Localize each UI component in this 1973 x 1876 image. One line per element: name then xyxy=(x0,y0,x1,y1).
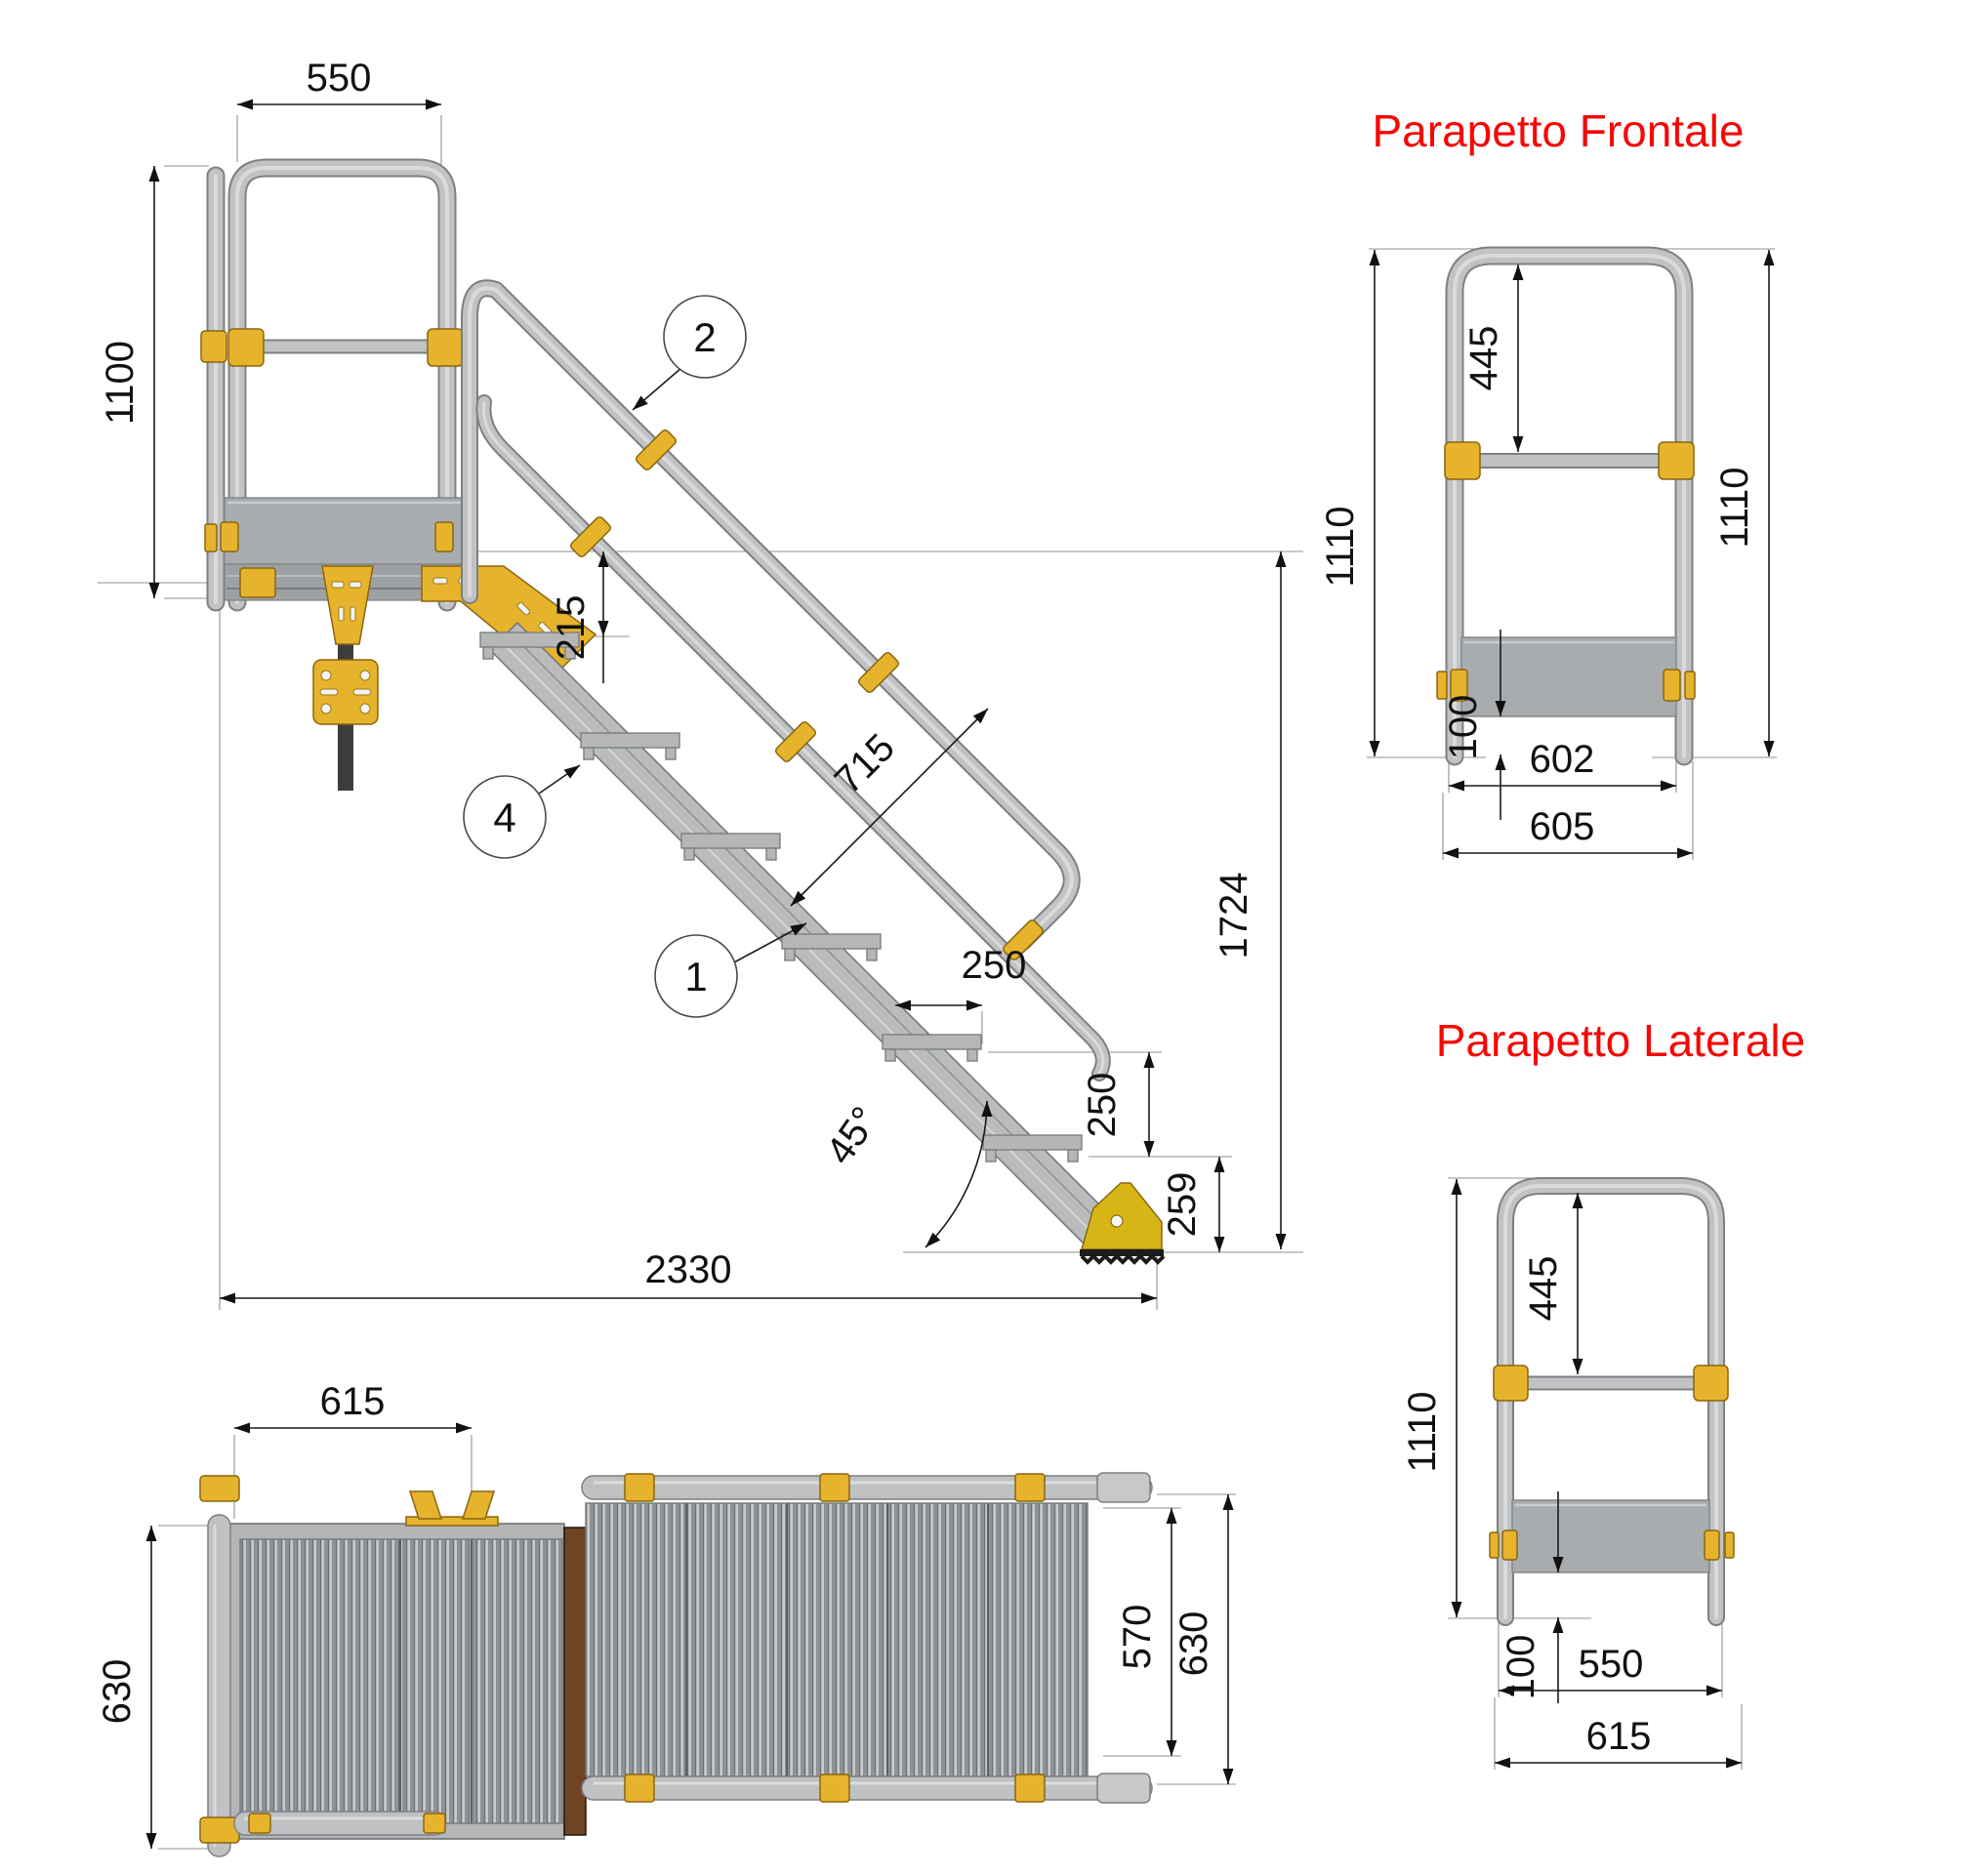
dim-615-lat-label: 615 xyxy=(1586,1715,1652,1758)
dim-2330-label: 2330 xyxy=(645,1248,732,1291)
plan-rail-clamp xyxy=(200,1817,239,1843)
plan-rail-clamp xyxy=(424,1814,445,1833)
midrail-clamp xyxy=(1659,442,1694,479)
callout-1-label: 1 xyxy=(684,954,707,999)
front-parapet-view: Parapetto Frontale 445 1110 1110 100 602… xyxy=(1319,105,1777,860)
plan-rail-clamp xyxy=(249,1814,270,1833)
dim-630-right-label: 630 xyxy=(1172,1611,1215,1677)
dim-630-left-label: 630 xyxy=(96,1659,139,1725)
side-parapet-dimensions: 445 1110 100 550 615 xyxy=(1401,1179,1742,1763)
plan-rail-clamp xyxy=(1015,1774,1045,1802)
stair-foot xyxy=(1082,1183,1162,1249)
dim-1110-right-label: 1110 xyxy=(1713,467,1756,548)
dim-1110-lat-label: 1110 xyxy=(1401,1391,1444,1472)
plan-side-rail xyxy=(208,1515,230,1856)
toeboard-clip xyxy=(221,522,238,551)
toeboard-clip xyxy=(435,522,453,551)
side-view: 550 1100 215 715 250 250 259 45° 2330 17… xyxy=(98,57,1303,1310)
stair-decking xyxy=(586,1503,1088,1776)
midrail-clamp xyxy=(428,329,463,366)
toeboard-clip xyxy=(1502,1530,1517,1560)
toeboard-clip xyxy=(1725,1532,1734,1558)
dim-550-lat-label: 550 xyxy=(1579,1643,1644,1686)
stair-assembly xyxy=(480,623,1164,1262)
dim-1724-label: 1724 xyxy=(1213,873,1255,959)
technical-drawing-page: 550 1100 215 715 250 250 259 45° 2330 17… xyxy=(0,0,1973,1876)
dim-605-label: 605 xyxy=(1530,805,1595,848)
plan-rail-clamp xyxy=(625,1474,654,1501)
dim-615-plan-label: 615 xyxy=(320,1380,386,1423)
dim-1100-label: 1100 xyxy=(99,341,142,425)
front-parapet-dimensions: 445 1110 1110 100 602 605 xyxy=(1319,250,1769,853)
front-parapet-title: Parapetto Frontale xyxy=(1372,105,1744,156)
dim-45deg-label: 45° xyxy=(818,1099,887,1172)
callout-4-label: 4 xyxy=(493,795,515,840)
dim-250-rise-label: 250 xyxy=(1081,1073,1124,1138)
midrail-clamp xyxy=(1494,1366,1528,1401)
side-view-dimensions: 550 1100 215 715 250 250 259 45° 2330 17… xyxy=(99,57,1281,1298)
dim-602-label: 602 xyxy=(1530,738,1595,781)
anchor-bracket xyxy=(406,1491,498,1526)
midrail-clamp xyxy=(1445,442,1480,479)
side-parapet-title: Parapetto Laterale xyxy=(1436,1015,1806,1066)
toeboard-clip xyxy=(1664,670,1680,701)
dim-250-going-label: 250 xyxy=(962,944,1027,987)
midrail-clamp xyxy=(1694,1366,1728,1401)
side-toeboard xyxy=(1512,1500,1709,1572)
deck-plate xyxy=(240,568,275,597)
toeboard-clip xyxy=(1490,1532,1499,1558)
plan-stair-rail-top xyxy=(582,1476,1152,1499)
toeboard-clip xyxy=(205,524,217,551)
drawing-canvas: 550 1100 215 715 250 250 259 45° 2330 17… xyxy=(0,0,1973,1876)
dim-259-label: 259 xyxy=(1161,1172,1204,1238)
rail-end-sleeve xyxy=(1097,1473,1150,1502)
dim-445-lat-label: 445 xyxy=(1522,1256,1565,1322)
center-bracket xyxy=(322,566,373,644)
plan-view: 615 630 570 630 xyxy=(96,1380,1236,1856)
dim-550-label: 550 xyxy=(307,57,372,100)
side-parapet-view: Parapetto Laterale 445 1110 100 550 615 xyxy=(1401,1015,1805,1770)
plan-rail-clamp xyxy=(200,1476,239,1501)
plan-rail-clamp xyxy=(820,1774,849,1802)
midrail-clamp xyxy=(201,331,226,362)
dim-100-label: 100 xyxy=(1442,695,1485,760)
plan-stair-rail-bottom xyxy=(582,1776,1152,1800)
plan-rail-clamp xyxy=(1015,1474,1045,1501)
plan-rail-clamp xyxy=(625,1774,654,1802)
dim-445-label: 445 xyxy=(1462,326,1505,391)
toeboard-clip xyxy=(1685,672,1695,699)
plan-rail-clamp xyxy=(820,1474,849,1501)
toeboard-clip xyxy=(1705,1530,1719,1560)
foot-hole xyxy=(1111,1215,1123,1227)
midrail-clamp xyxy=(228,329,264,366)
dim-570-label: 570 xyxy=(1116,1605,1159,1670)
callout-2-label: 2 xyxy=(693,314,716,360)
dim-1110-left-label: 1110 xyxy=(1319,506,1362,587)
dim-215-label: 215 xyxy=(550,595,593,661)
front-toeboard xyxy=(1461,637,1676,716)
rail-end-sleeve xyxy=(1097,1774,1150,1803)
